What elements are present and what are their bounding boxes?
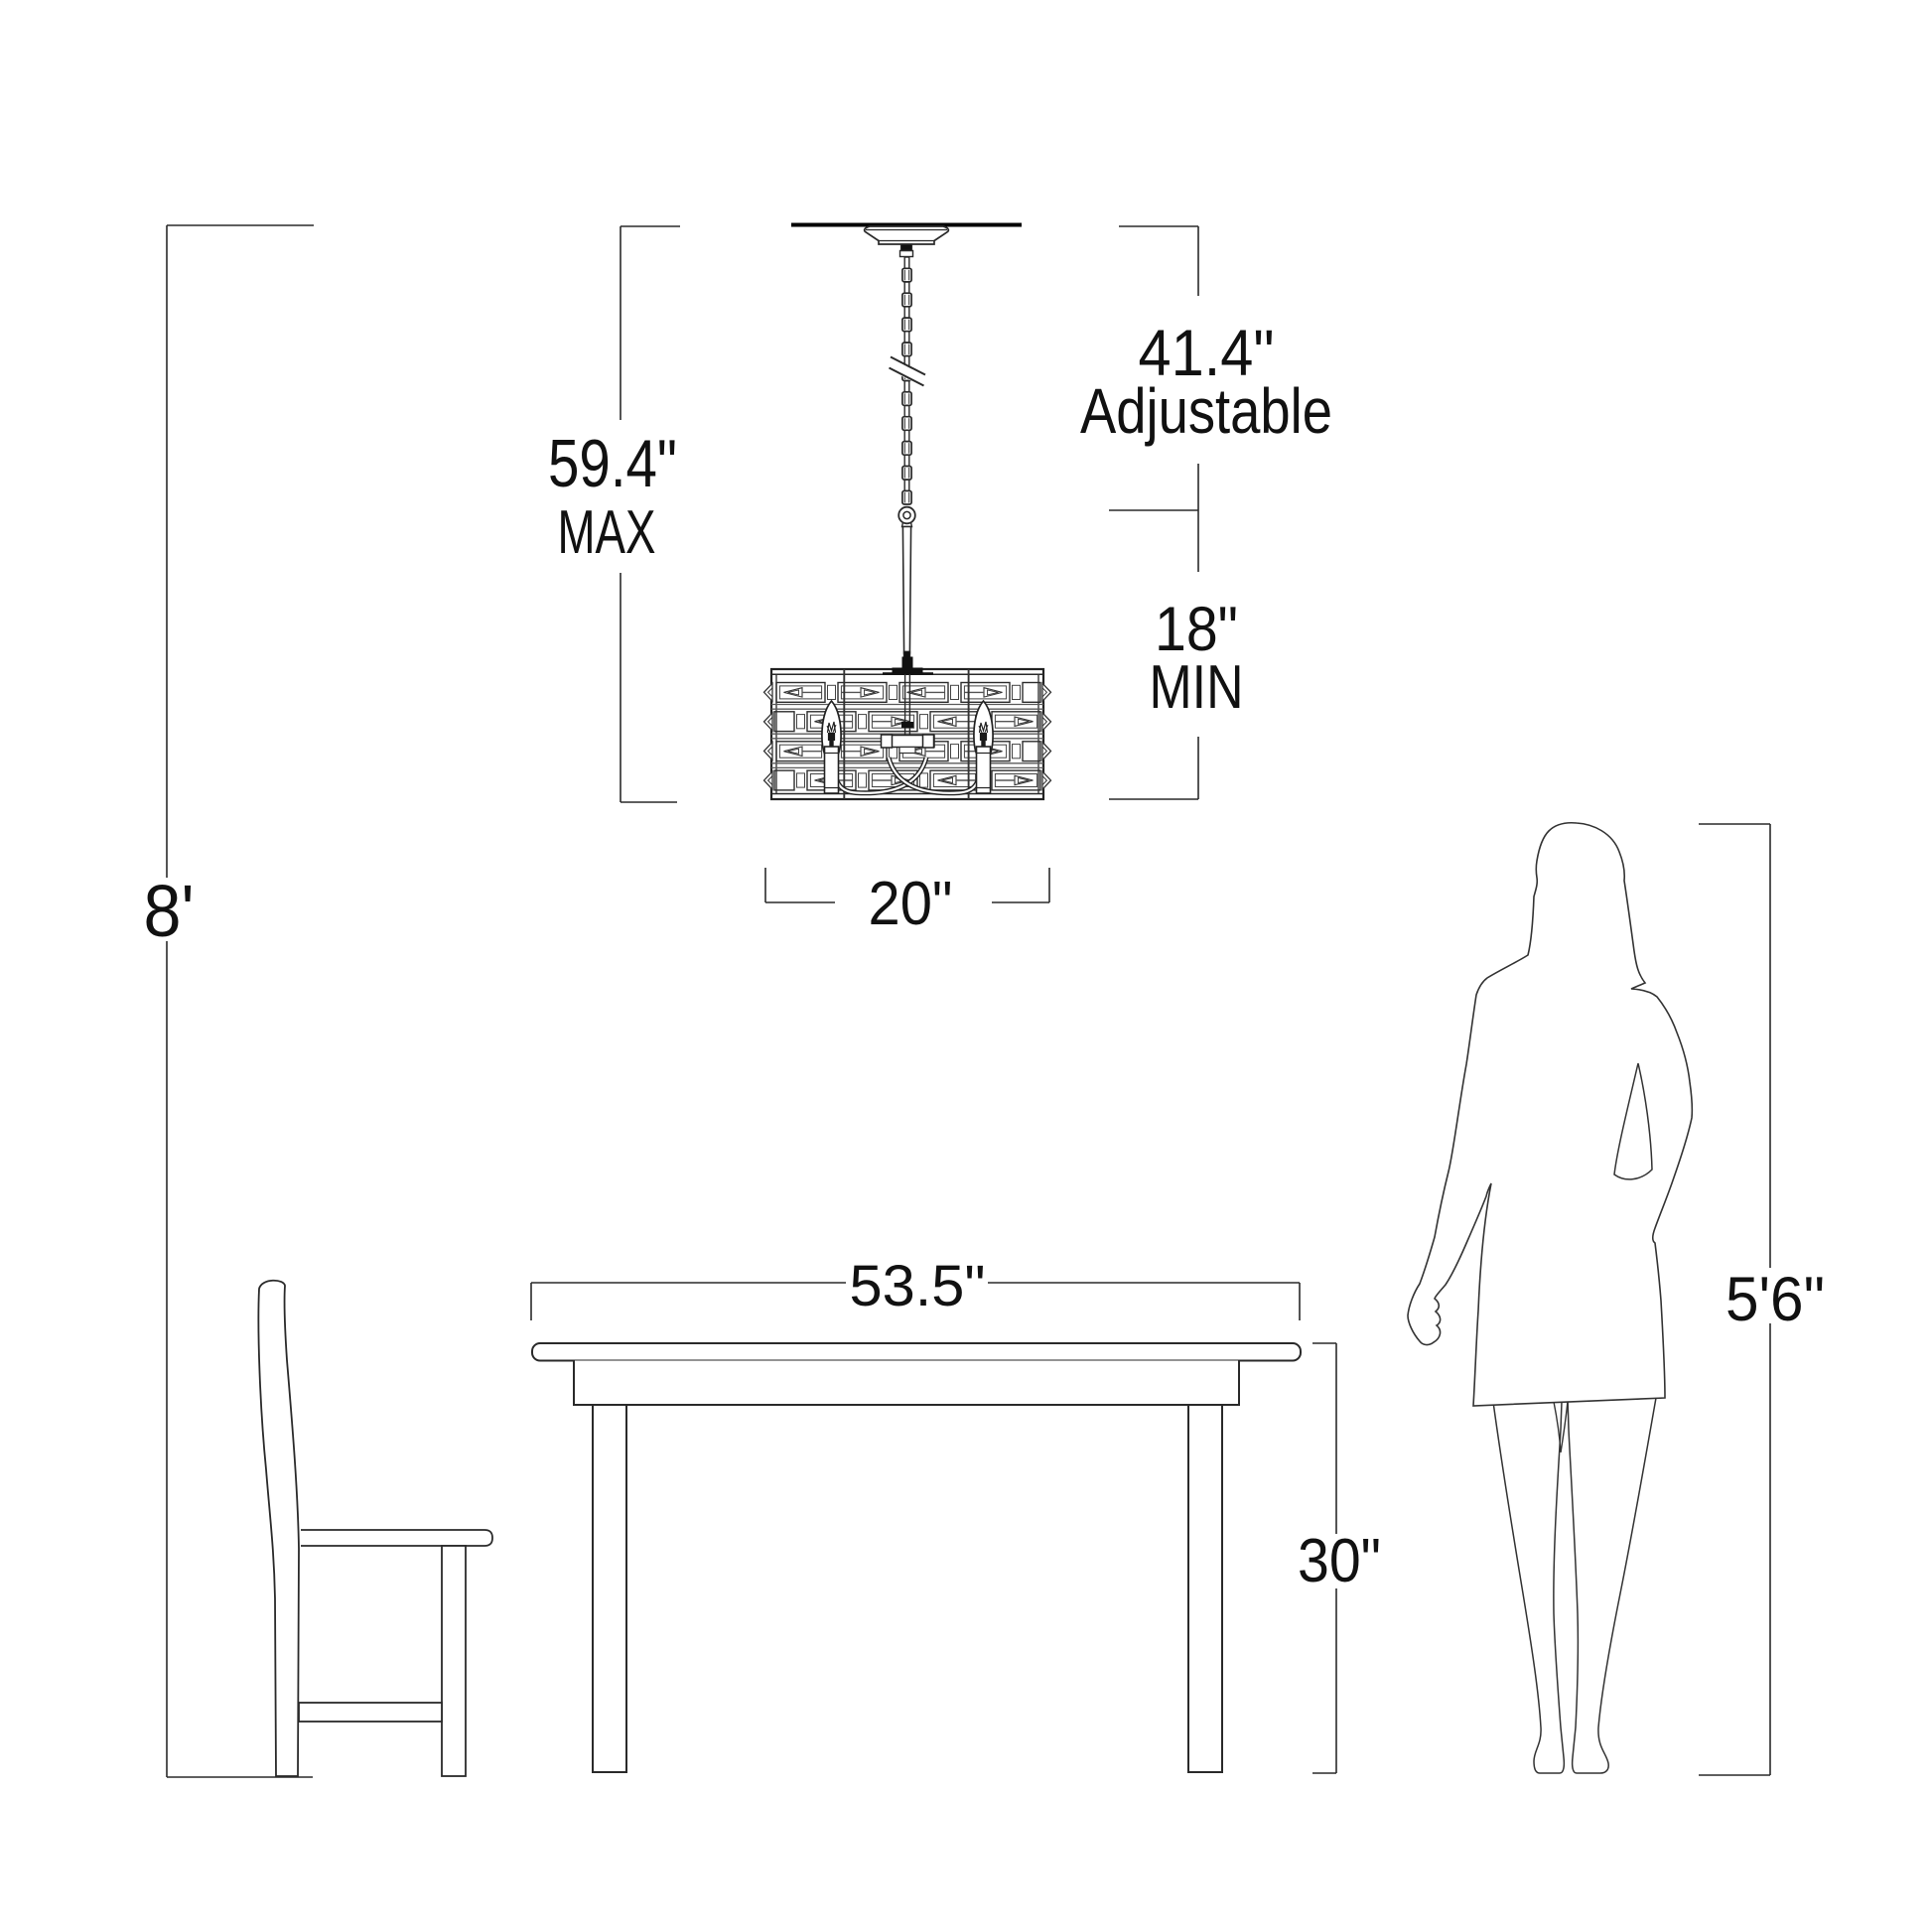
svg-text:Adjustable: Adjustable bbox=[1080, 375, 1332, 447]
svg-text:MAX: MAX bbox=[558, 498, 656, 567]
svg-text:MIN: MIN bbox=[1150, 653, 1244, 722]
svg-text:20": 20" bbox=[869, 870, 953, 938]
svg-text:59.4": 59.4" bbox=[548, 426, 677, 501]
svg-text:8': 8' bbox=[144, 870, 195, 952]
svg-text:53.5": 53.5" bbox=[850, 1254, 986, 1318]
svg-text:5'6": 5'6" bbox=[1725, 1265, 1825, 1334]
svg-text:30": 30" bbox=[1298, 1527, 1381, 1595]
